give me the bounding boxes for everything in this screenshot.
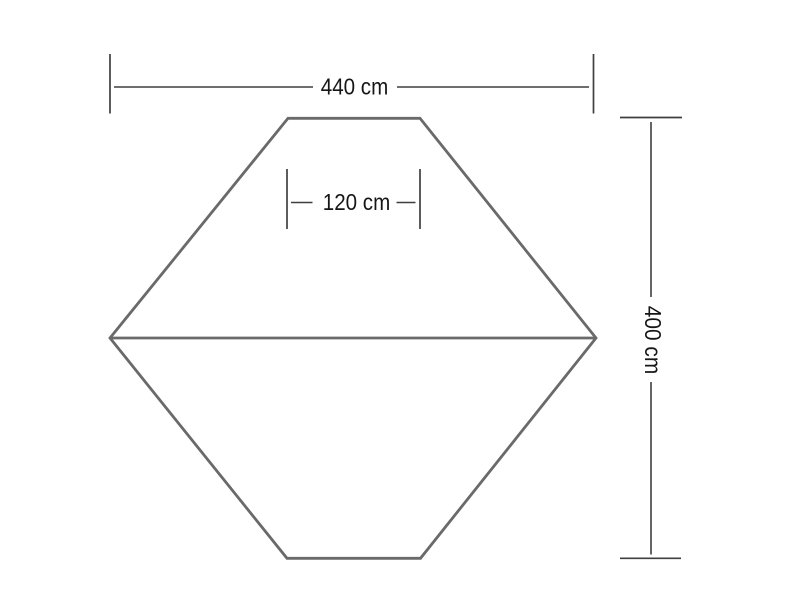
- svg-text:120 cm: 120 cm: [323, 189, 391, 215]
- svg-text:400 cm: 400 cm: [640, 306, 666, 375]
- svg-text:440 cm: 440 cm: [321, 73, 389, 99]
